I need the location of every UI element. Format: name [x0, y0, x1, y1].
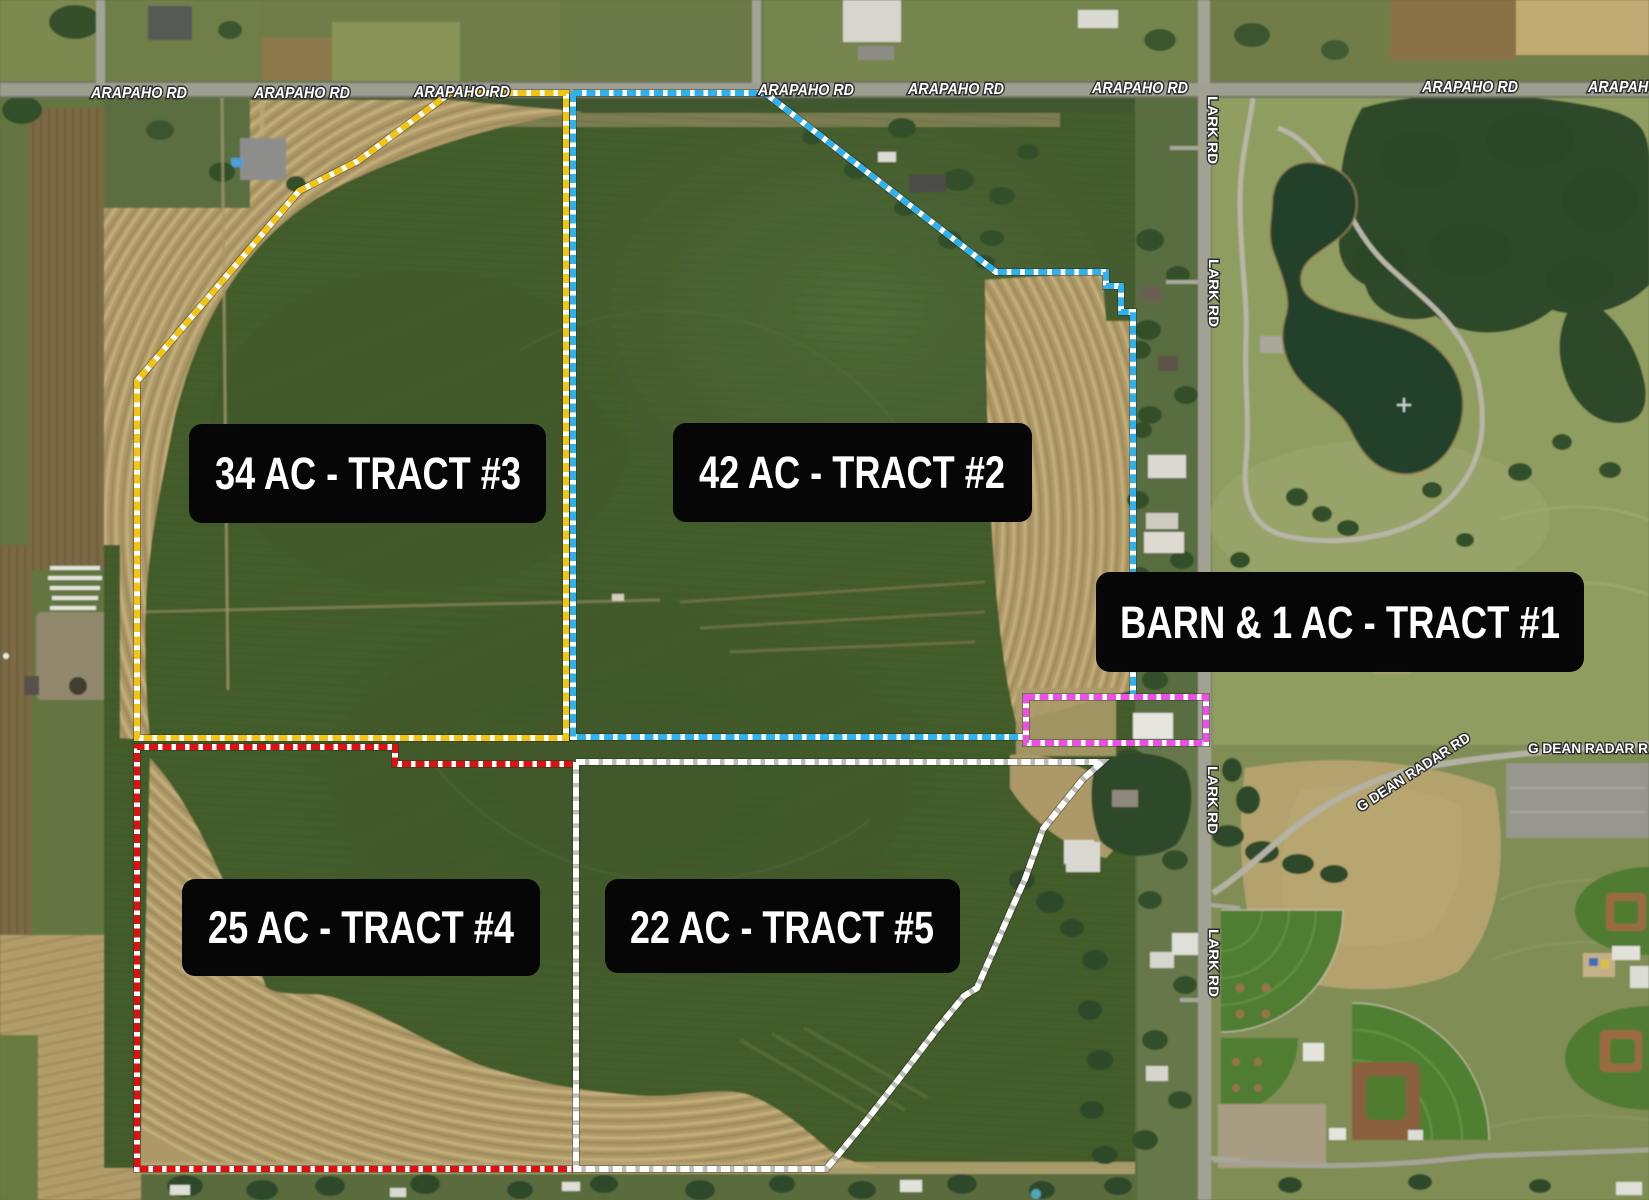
svg-text:LARK RD: LARK RD: [1205, 766, 1221, 834]
svg-text:ARAPAHO RD: ARAPAHO RD: [253, 85, 350, 102]
svg-text:G DEAN RADAR R: G DEAN RADAR R: [1528, 740, 1648, 756]
svg-text:ARAPAHO RD: ARAPAHO RD: [1091, 80, 1188, 97]
svg-text:LARK RD: LARK RD: [1205, 96, 1221, 164]
svg-text:ARAPAHO RD: ARAPAHO RD: [1587, 79, 1649, 96]
svg-text:LARK RD: LARK RD: [1206, 259, 1222, 327]
svg-text:42 AC - TRACT #2: 42 AC - TRACT #2: [699, 447, 1005, 498]
svg-text:22 AC - TRACT #5: 22 AC - TRACT #5: [630, 902, 934, 953]
svg-text:ARAPAHO RD: ARAPAHO RD: [90, 85, 187, 102]
svg-text:ARAPAHO RD: ARAPAHO RD: [757, 82, 854, 99]
svg-text:25 AC - TRACT #4: 25 AC - TRACT #4: [208, 902, 514, 953]
svg-text:LARK RD: LARK RD: [1206, 929, 1222, 997]
svg-text:BARN & 1 AC - TRACT #1: BARN & 1 AC - TRACT #1: [1120, 597, 1560, 648]
svg-text:ARAPAHO RD: ARAPAHO RD: [1421, 79, 1518, 96]
svg-text:ARAPAHO RD: ARAPAHO RD: [907, 81, 1004, 98]
svg-text:34 AC - TRACT #3: 34 AC - TRACT #3: [215, 448, 521, 499]
svg-text:ARAPAHO RD: ARAPAHO RD: [413, 84, 510, 101]
